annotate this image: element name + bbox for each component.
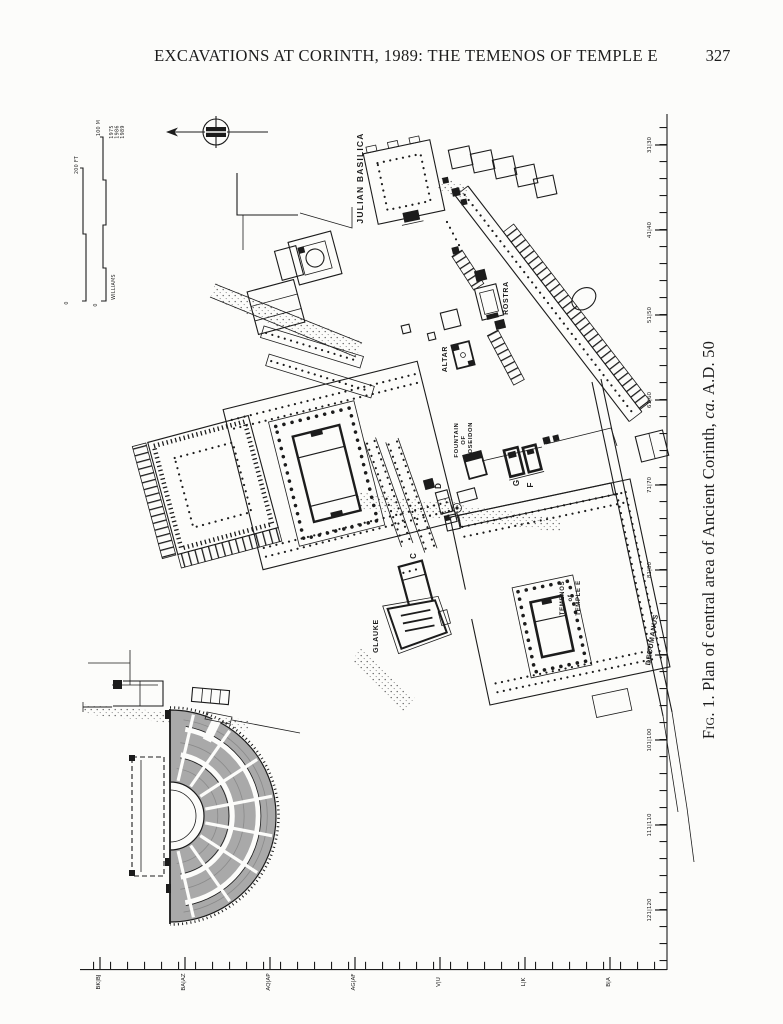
grid-label: 111|110 (647, 813, 653, 837)
northwest-quarter (237, 173, 374, 398)
southeast-walls (592, 688, 632, 717)
temple-g-label: G (512, 480, 521, 486)
scale-feet-label: 200 FT (74, 156, 80, 174)
decumanus-road (592, 379, 694, 862)
journal-page: EXCAVATIONS AT CORINTH, 1989: THE TEMENO… (0, 0, 783, 1024)
bottom-ruler-labels: BK|BJ BA|AZ AQ|AP AG|AF V|U L|K B|A (96, 973, 612, 991)
theater (165, 708, 279, 925)
south-stoa (455, 164, 670, 422)
temenos-label-2: of (568, 594, 574, 601)
spine-ladder-south (487, 330, 524, 385)
stoa-shops-ladder (503, 224, 650, 409)
orchestra-ring (170, 790, 196, 842)
grid-label: B|A (606, 977, 612, 987)
temenos-label-3: TEMPLE E (576, 580, 582, 616)
scale-meters-label: 100 M (96, 120, 102, 136)
rostra (474, 284, 503, 321)
spine-ladder-north (452, 250, 484, 290)
grid-label: 51|50 (647, 307, 653, 324)
grid-label: BK|BJ (96, 974, 102, 989)
altar-structure (451, 341, 474, 369)
monument-d-label: D (434, 483, 443, 489)
julian-basilica-label: JULIAN BASILICA (355, 132, 365, 223)
grid-label: BA|AZ (181, 973, 187, 990)
fountain-label-2: OF (461, 435, 467, 444)
grid-label: L|K (521, 977, 527, 986)
temenos-label-1: TEMENOS (560, 581, 566, 616)
grid-label: 31|30 (647, 137, 653, 154)
fountain-label-3: POSEIDON (468, 422, 474, 458)
north-arrow (166, 116, 268, 148)
right-ruler-labels: 31|30 41|40 51|50 61|60 71|70 81|80 91|9… (647, 137, 653, 922)
grid-label: AG|AF (351, 974, 357, 991)
grid-label: AQ|AP (266, 973, 272, 991)
right-ruler-minor-ticks (660, 114, 668, 964)
scale-year-2: 1986 (115, 125, 121, 138)
grid-label: V|U (436, 977, 442, 987)
archaic-temple (268, 401, 384, 546)
scale-bars: 200 FT 0 100 M 0 1975 1986 1989 WILLIAMS (64, 120, 126, 307)
open-square (440, 309, 461, 330)
fountain-of-poseidon (463, 451, 487, 479)
bottom-ruler-minor-ticks (82, 962, 662, 970)
rostra-label: ROSTRA (503, 281, 510, 315)
altar-label: ALTAR (442, 346, 449, 372)
peristyle-court (132, 416, 282, 573)
glauke-label: GLAUKE (373, 619, 380, 653)
grid-label: 41|40 (647, 222, 653, 239)
central-spine: ROSTRA ALTAR (401, 222, 524, 385)
scale-year-3: 1989 (120, 125, 126, 138)
grid-label: 71|70 (647, 477, 653, 494)
stage-building (129, 755, 164, 876)
grid-label: 121|120 (647, 898, 653, 922)
scale-meters-zero: 0 (93, 303, 99, 306)
court-south-rooms (178, 528, 282, 568)
monument-black-south (494, 319, 506, 330)
court-west-rooms (132, 443, 176, 559)
scale-feet-zero: 0 (64, 301, 70, 304)
grid-label: 101|100 (647, 728, 653, 752)
fountain-label-1: FOUNTAIN (454, 422, 460, 457)
temple-f-label: F (526, 482, 535, 487)
site-plan-figure: 200 FT 0 100 M 0 1975 1986 1989 WILLIAMS (0, 0, 783, 1024)
glauke-fountain (383, 590, 455, 654)
temple-c-label: C (409, 553, 418, 559)
scale-year-1: 1975 (109, 125, 115, 138)
plan-credit: WILLIAMS (111, 274, 117, 300)
